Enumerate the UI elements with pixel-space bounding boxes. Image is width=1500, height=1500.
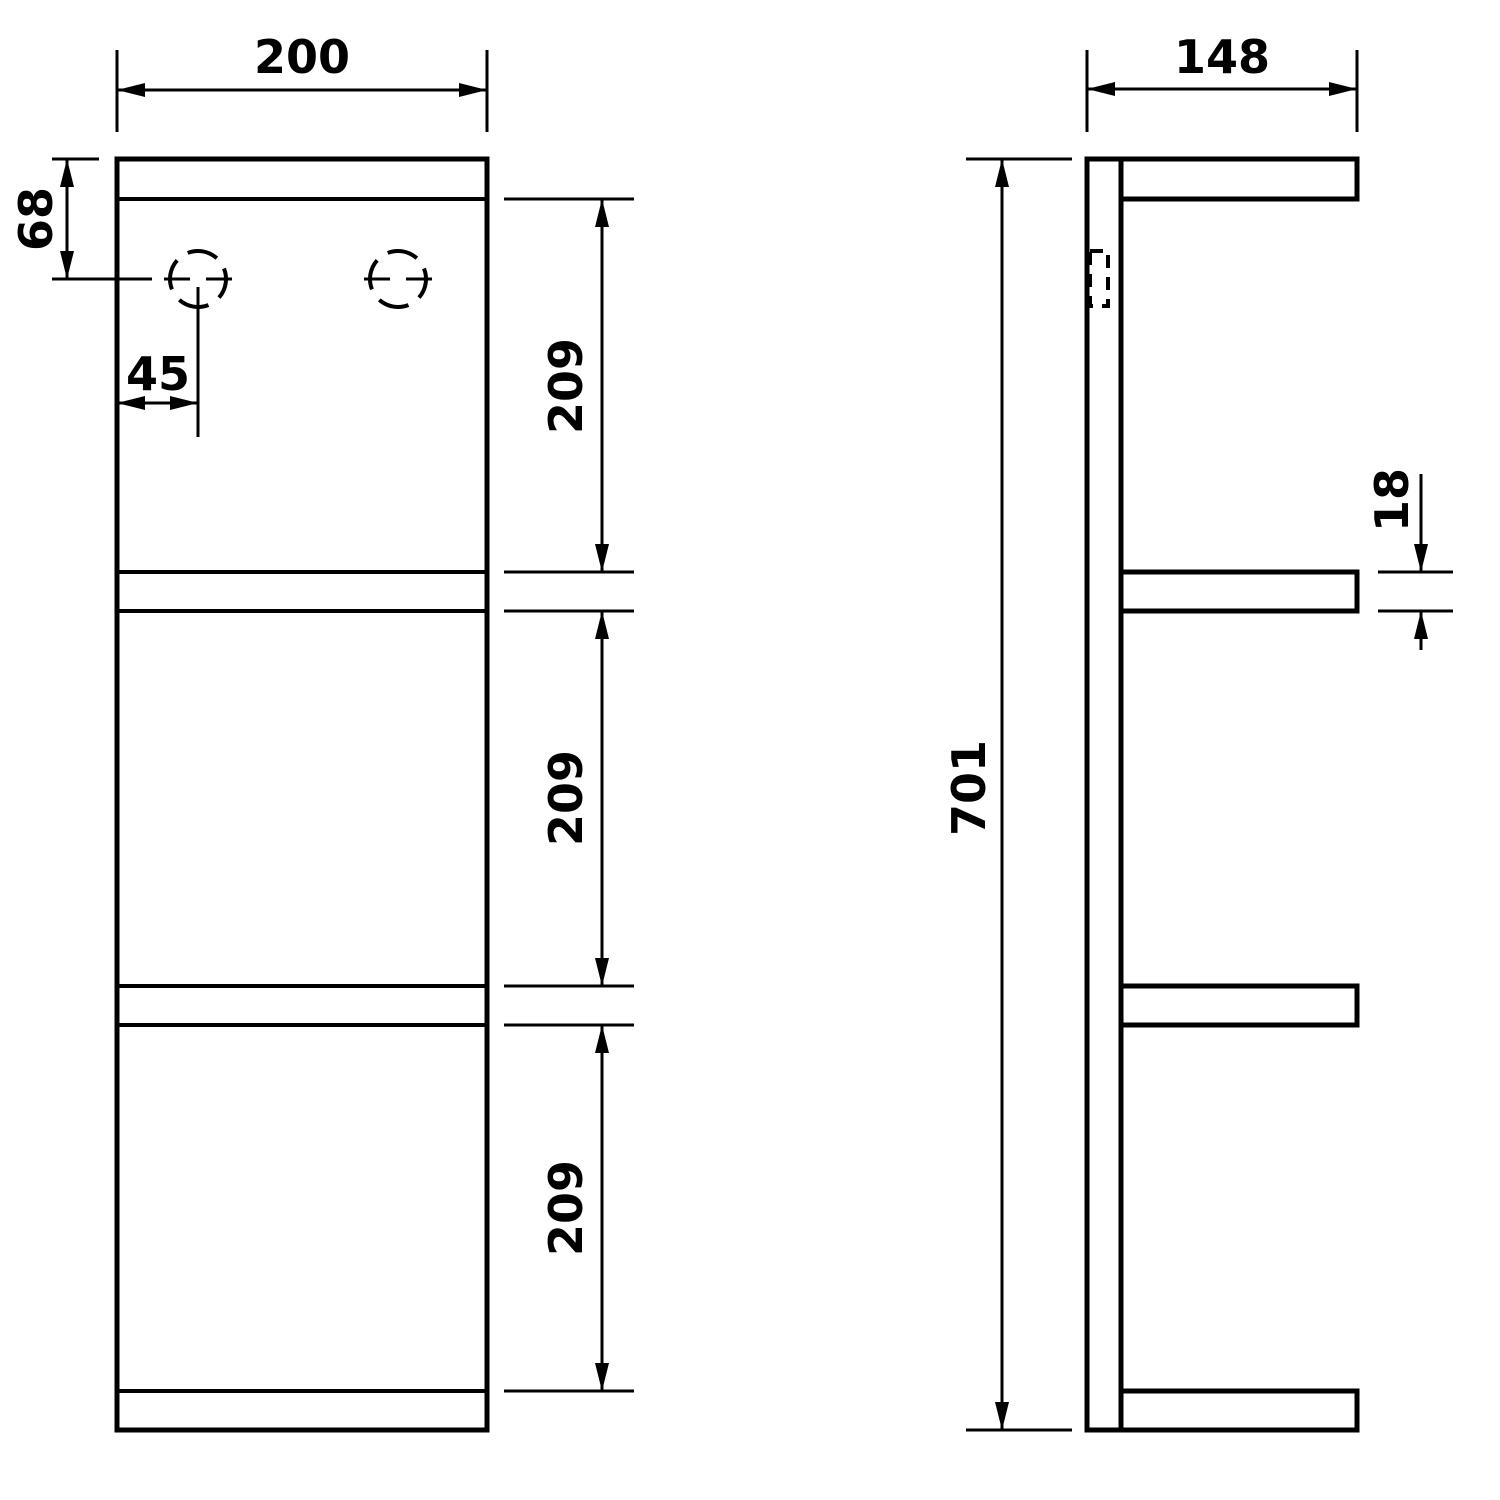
dim-label-width: 200	[254, 30, 350, 84]
arrowhead-down	[60, 251, 74, 279]
dim-label-opening-top: 209	[539, 338, 593, 434]
dim-side-depth: 148	[1087, 30, 1357, 132]
dim-label-depth: 148	[1174, 30, 1270, 84]
arrowhead-down	[595, 958, 609, 986]
arrowhead-up	[595, 1025, 609, 1053]
keyhole-slot	[1090, 251, 1108, 306]
dim-label-height: 701	[942, 740, 996, 836]
arrowhead-down	[595, 1363, 609, 1391]
dim-label-shelf-thickness: 18	[1365, 468, 1419, 532]
arrowhead-left	[1087, 82, 1115, 96]
dim-front-top-to-hole: 68	[9, 159, 152, 279]
arrowhead-down	[1414, 544, 1428, 572]
arrowhead-up	[60, 159, 74, 187]
arrowhead-up	[595, 611, 609, 639]
dim-front-opening-bottom: 209	[504, 1025, 634, 1391]
side-shelf-bottom	[1121, 1391, 1357, 1430]
dim-front-width: 200	[117, 30, 487, 132]
side-back-panel	[1087, 159, 1121, 1430]
dim-front-opening-top: 209	[504, 199, 634, 572]
dim-front-opening-middle: 209	[504, 611, 634, 986]
arrowhead-up	[1414, 611, 1428, 639]
side-shelf-top	[1121, 159, 1357, 199]
dim-side-height: 701	[942, 159, 1072, 1430]
dim-label-top-to-hole: 68	[9, 187, 63, 251]
side-shelf-middle	[1121, 572, 1357, 611]
mounting-hole-right	[362, 243, 435, 316]
dim-label-opening-middle: 209	[539, 750, 593, 846]
arrowhead-up	[595, 199, 609, 227]
side-shelf-lower	[1121, 986, 1357, 1025]
dim-label-opening-bottom: 209	[539, 1160, 593, 1256]
front-view: 200 68 45 209	[9, 30, 634, 1430]
dim-label-hole-inset: 45	[126, 347, 190, 401]
arrowhead-right	[459, 83, 487, 97]
drawing-canvas: 200 68 45 209	[0, 0, 1500, 1500]
dim-side-shelf-thickness: 18	[1365, 468, 1453, 650]
side-view: 148 701 18	[942, 30, 1453, 1430]
arrowhead-right	[1329, 82, 1357, 96]
arrowhead-down	[995, 1402, 1009, 1430]
dim-front-hole-inset: 45	[117, 287, 198, 437]
technical-drawing: 200 68 45 209	[0, 0, 1500, 1500]
arrowhead-down	[595, 544, 609, 572]
arrowhead-left	[117, 83, 145, 97]
arrowhead-up	[995, 159, 1009, 187]
